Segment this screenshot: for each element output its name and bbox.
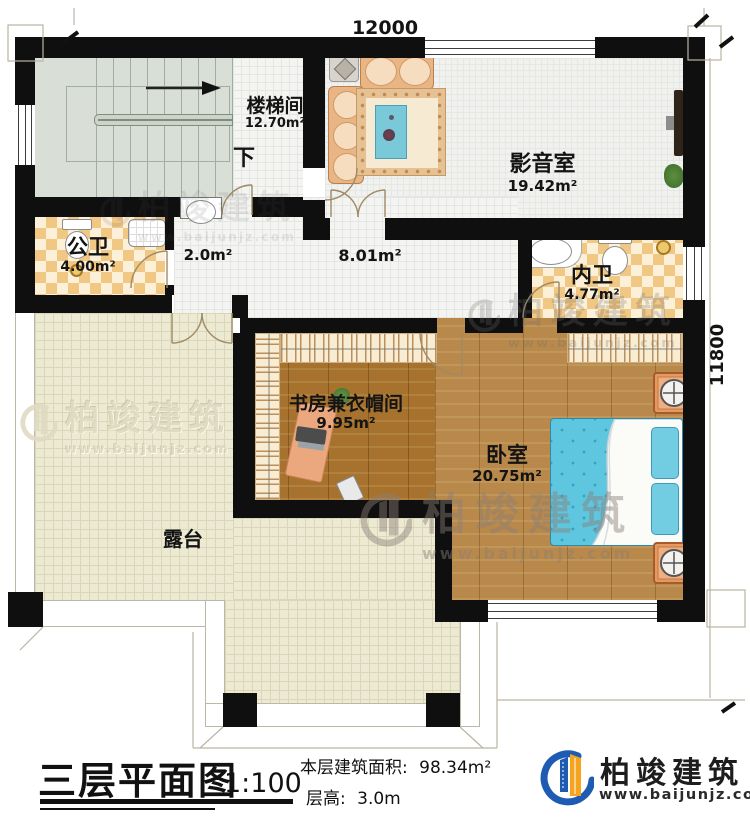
room-name: 公卫 [46,236,130,260]
door-arcs [131,168,559,375]
room-area: 9.95m² [262,415,430,432]
title-underline-thick [40,799,293,804]
floor-height-row: 层高: 3.0m [306,784,401,809]
dimension-ticks [62,15,735,712]
plan-scale: 1:100 [224,768,302,799]
floor-area-label: 本层建筑面积: [300,758,408,778]
floor-area-row: 本层建筑面积: 98.34m² [300,753,491,778]
dimension-right: 11800 [708,315,730,395]
brand-name: 柏竣建筑 [600,748,744,792]
floor-area-value: 98.34m² [419,758,491,778]
plan-title: 三层平面图 [38,750,238,805]
room-area: 4.77m² [550,288,634,304]
room-area: 19.42m² [465,178,620,195]
room-label-hall: 8.01m² [330,247,410,265]
room-label-ensuite: 内卫 4.77m² [550,264,634,303]
stairs-direction-label: 下 [230,147,258,172]
room-area: 12.70m² [230,117,320,132]
room-label-stairs: 楼梯间 12.70m² [230,96,320,132]
brand-logo-icon [540,750,594,808]
room-name: 卧室 [448,444,566,468]
room-area: 20.75m² [448,468,566,485]
room-name: 楼梯间 [230,96,320,117]
title-underline-thin [40,808,215,810]
room-label-public-bath: 公卫 4.00m² [46,236,130,275]
floor-height-label: 层高: [306,789,346,809]
roof-outline [8,8,745,748]
room-name: 书房兼衣帽间 [262,394,430,415]
room-label-study: 书房兼衣帽间 9.95m² [262,394,430,432]
room-label-lobby: 2.0m² [180,247,236,264]
room-name: 内卫 [550,264,634,288]
stair-arrow-icon [202,81,221,95]
room-label-media: 影音室 19.42m² [465,153,620,194]
dimension-top: 12000 [345,18,425,39]
floor-height-value: 3.0m [357,789,401,809]
brand-website: www.baijunjz.com [599,787,750,803]
room-label-bedroom: 卧室 20.75m² [448,444,566,484]
room-label-terrace: 露台 [148,528,218,550]
room-area: 4.00m² [46,260,130,276]
room-name: 影音室 [465,153,620,178]
